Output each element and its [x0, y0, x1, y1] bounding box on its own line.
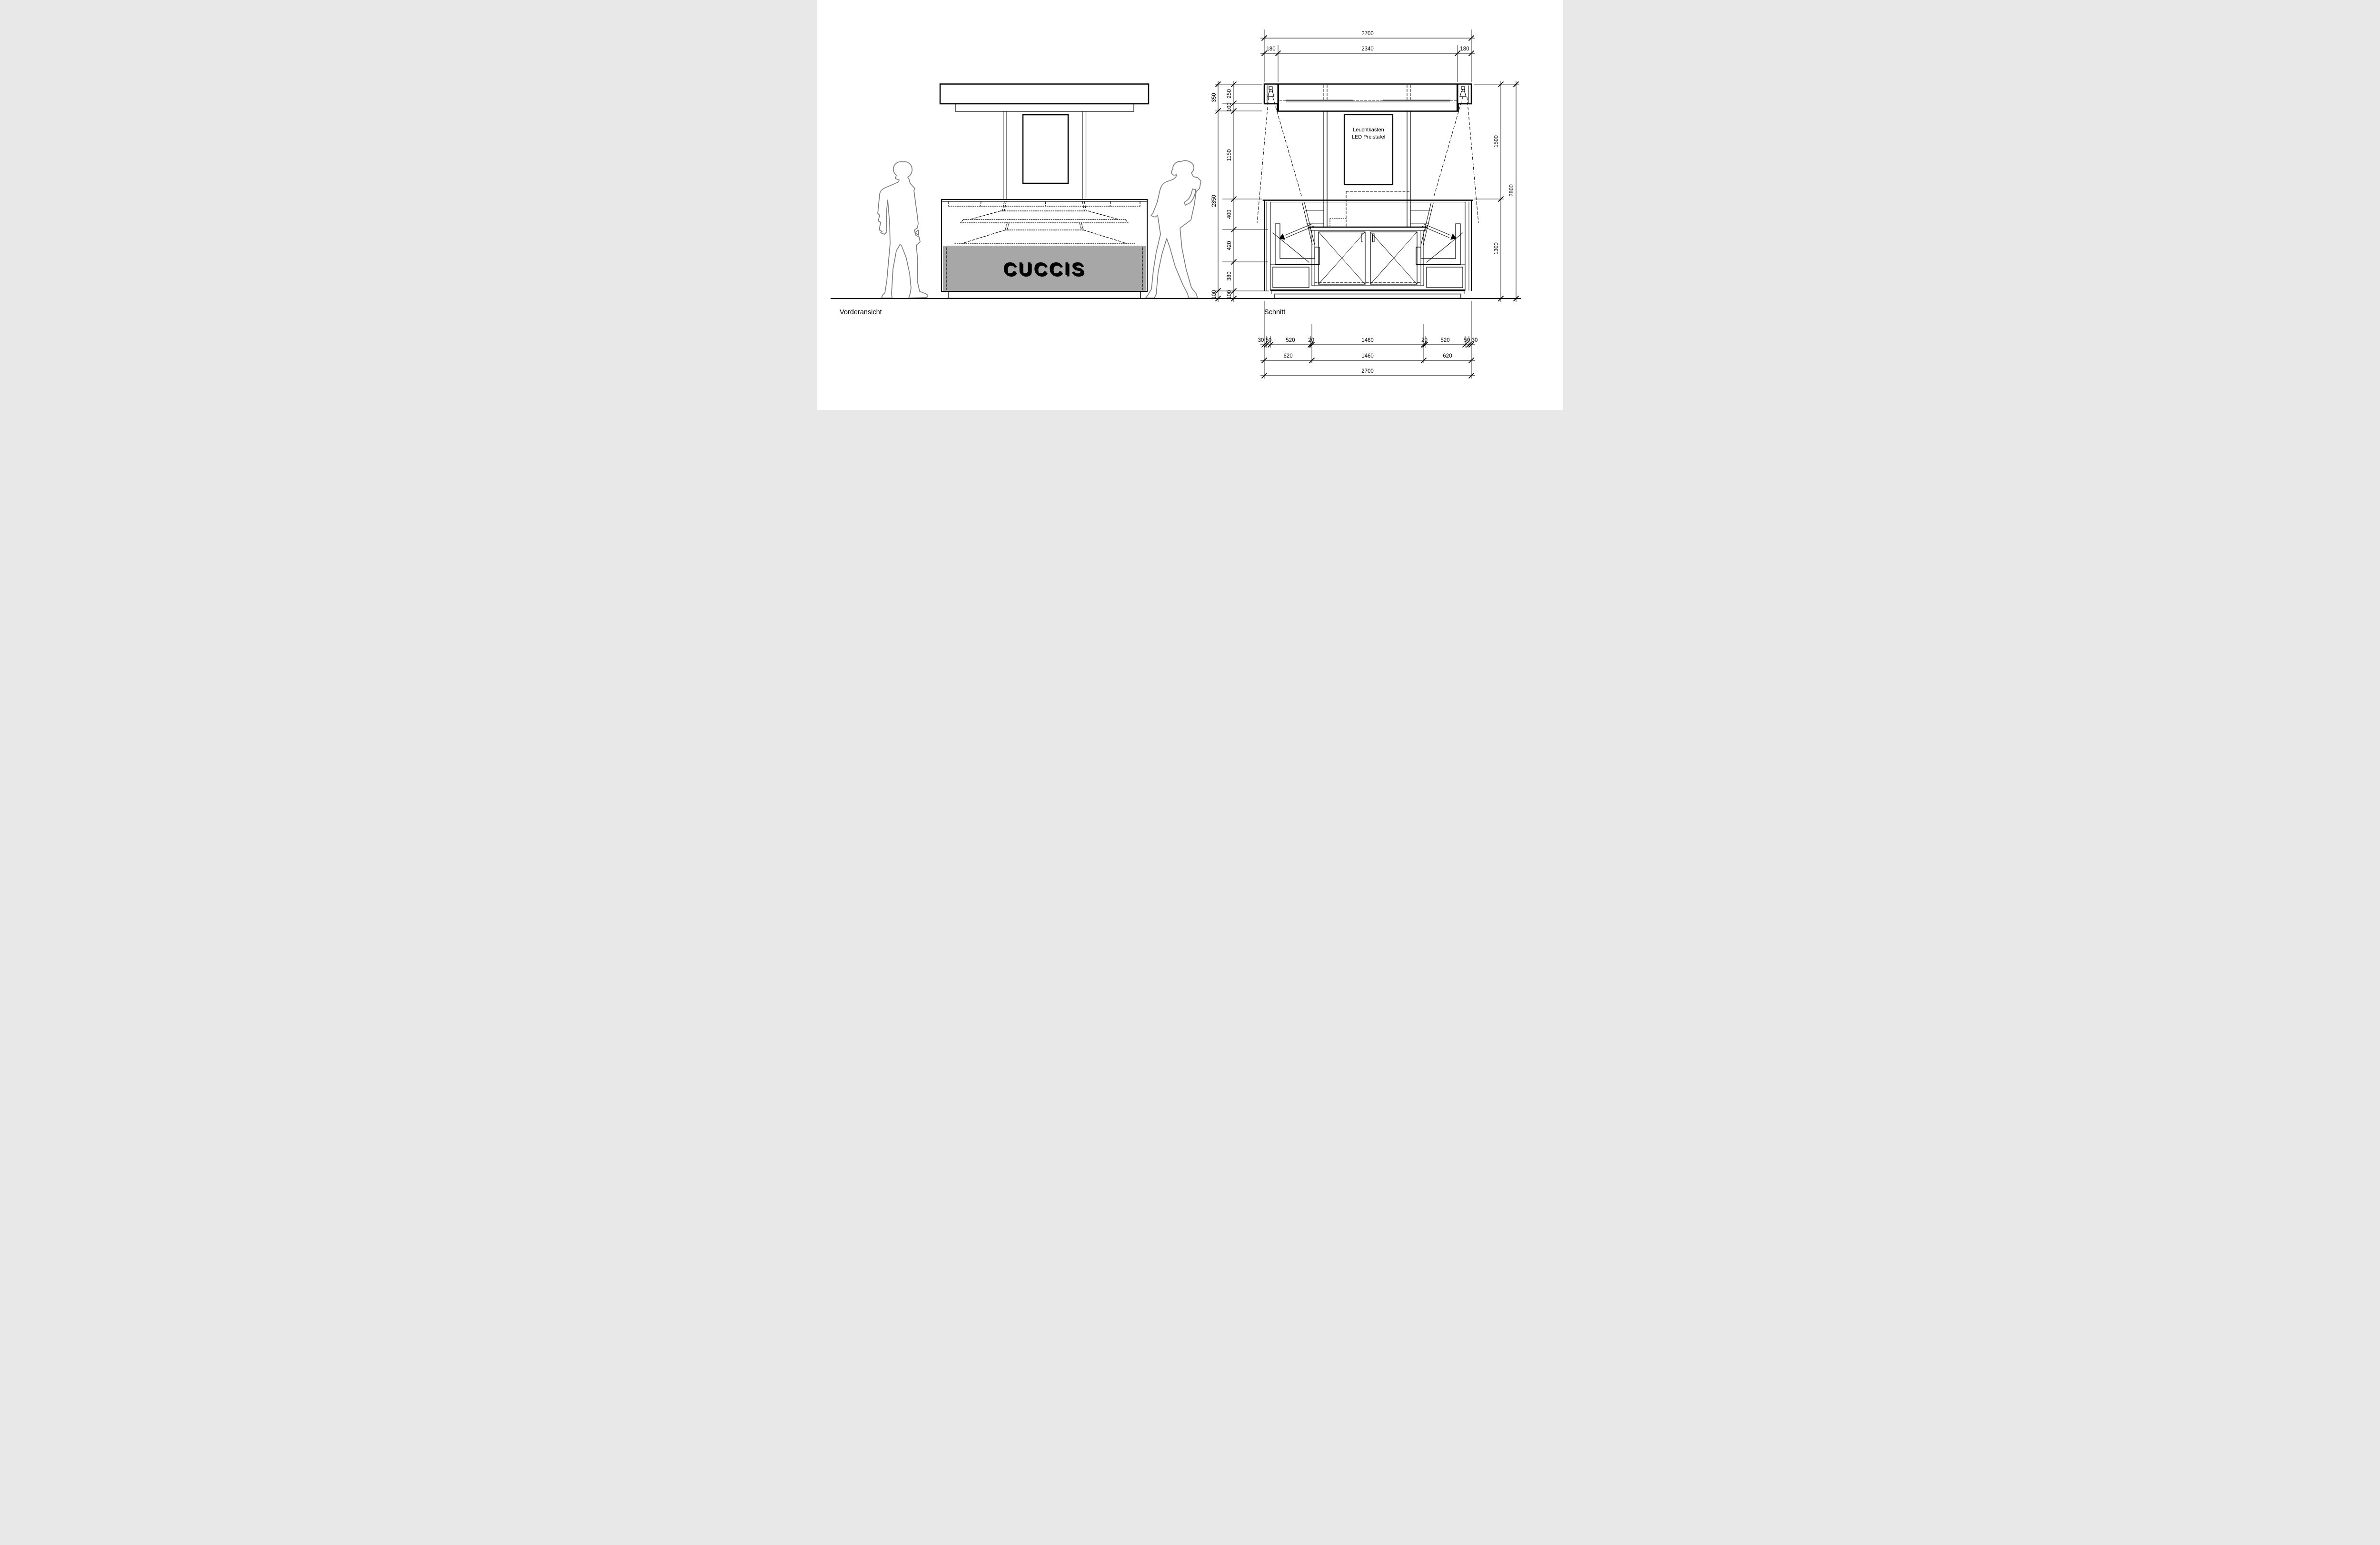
- dim-label: 2340: [1361, 46, 1374, 52]
- dim-right: 1500 1300 2800: [1474, 81, 1519, 302]
- dim-label: 1460: [1361, 353, 1374, 359]
- section-canopy: [1264, 84, 1471, 111]
- light-batten: [1279, 100, 1457, 102]
- front-sign-panel: [1023, 115, 1068, 183]
- dim-label: 30: [1258, 338, 1264, 343]
- dim-label: 50: [1464, 338, 1470, 343]
- front-view-title: Vorderansicht: [840, 309, 882, 316]
- dim-label: 100: [1211, 290, 1217, 299]
- section-view-title: Schnitt: [1264, 309, 1285, 316]
- dim-label: 520: [1286, 338, 1295, 343]
- front-plinth: [948, 291, 1140, 299]
- dim-label: 50: [1266, 338, 1272, 343]
- spotlight-right: [1460, 87, 1466, 97]
- dim-top: 2700 180 2340 180: [1260, 30, 1475, 82]
- dim-label: 250: [1227, 89, 1232, 98]
- lightbox-panel: Leuchtkasten LED Preistafel: [1344, 115, 1393, 185]
- front-view: CUCCIS CUCCIS: [878, 84, 1201, 299]
- dim-label: 2700: [1361, 369, 1374, 374]
- dim-bottom: 30 50 520 20 1460 20 520 50 30 620 1460 …: [1258, 301, 1478, 379]
- lightbox-label-line2: LED Preistafel: [1352, 134, 1385, 140]
- door-cross-braces: [1319, 232, 1417, 284]
- dim-label: 1500: [1494, 135, 1499, 148]
- person-figure-female: [1146, 160, 1201, 298]
- hidden-shelf-tiers: [946, 201, 1143, 246]
- dim-label: 620: [1443, 353, 1452, 359]
- dim-label: 100: [1227, 102, 1232, 111]
- dim-label: 1460: [1361, 338, 1374, 343]
- dim-label: 2800: [1509, 184, 1515, 197]
- technical-drawing-page: CUCCIS CUCCIS: [817, 0, 1563, 410]
- hidden-box-below-panel: [1330, 191, 1410, 227]
- front-canopy-fascia: [955, 104, 1134, 111]
- under-shelf-box-right: [1427, 267, 1463, 288]
- dim-label: 180: [1266, 46, 1275, 52]
- dim-left: 350 2350 100 250 100 1150 400 420 380 10…: [1211, 81, 1269, 302]
- lightbox-label-line1: Leuchtkasten: [1353, 127, 1384, 133]
- center-cabinet: [1309, 227, 1427, 286]
- dimensions: 2700 180 2340 180 350 2350 100 250: [1211, 30, 1519, 379]
- kiosk-drawing-svg: CUCCIS CUCCIS: [817, 0, 1563, 410]
- dim-label: 400: [1227, 209, 1232, 219]
- outer-walls: [1264, 200, 1471, 291]
- section-counter: [1263, 200, 1472, 299]
- under-shelf-box-left: [1273, 267, 1309, 288]
- dim-label: 2350: [1211, 195, 1217, 207]
- cuccis-logo-text: CUCCIS: [1003, 259, 1086, 279]
- section-plinth: [1271, 290, 1464, 299]
- dim-label: 350: [1211, 93, 1217, 102]
- section-view: Leuchtkasten LED Preistafel: [1257, 84, 1478, 299]
- front-column: [1003, 111, 1086, 199]
- dim-label: 2700: [1361, 31, 1374, 37]
- front-canopy-slab: [940, 84, 1149, 104]
- spotlight-left: [1268, 87, 1274, 97]
- person-figure-male: [878, 162, 928, 298]
- display-glass-left: [1279, 203, 1324, 245]
- dim-label: 420: [1227, 241, 1232, 250]
- dim-label: 20: [1421, 338, 1428, 343]
- front-counter: CUCCIS CUCCIS: [942, 199, 1147, 299]
- hidden-column-in-canopy: [1324, 85, 1410, 100]
- dim-label: 520: [1440, 338, 1449, 343]
- dim-label: 180: [1460, 46, 1469, 52]
- dim-label: 620: [1283, 353, 1292, 359]
- spotlight-cones: [1257, 97, 1478, 223]
- dim-label: 30: [1472, 338, 1478, 343]
- dim-label: 1300: [1494, 242, 1499, 255]
- dim-label: 100: [1227, 290, 1232, 299]
- dim-label: 380: [1227, 271, 1232, 280]
- cuccis-logo: CUCCIS CUCCIS: [1003, 259, 1087, 281]
- dim-label: 1150: [1227, 150, 1232, 161]
- dim-label: 20: [1308, 338, 1314, 343]
